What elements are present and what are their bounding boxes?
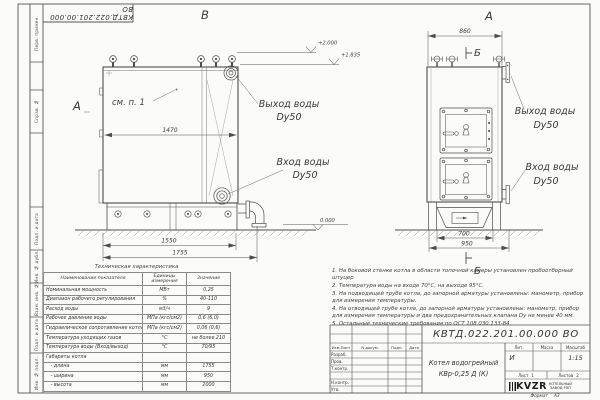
left-view-inlet-flange <box>214 188 230 204</box>
spec-cell: Гидравлическое сопротивление котла <box>44 324 143 334</box>
left-view-top-bolts <box>110 56 236 67</box>
dim-1470: 1470 <box>162 127 177 134</box>
table-row: - высотамм2000 <box>44 381 231 391</box>
note-1: 1. На боковой стенке котла в области топ… <box>332 268 588 282</box>
right-view-lower-door <box>440 158 492 200</box>
table-row: - длинамм1755 <box>44 362 231 372</box>
tb-scale-value: 1:15 <box>561 352 590 364</box>
ground-line-left <box>75 230 316 236</box>
tb-row-utv: Утв. <box>331 387 352 392</box>
spec-cell: Рабочее давление воды <box>44 314 143 324</box>
product-name-line2: КВр-0,25 Д (К) <box>439 370 489 378</box>
company-logo: KVZR <box>516 381 547 392</box>
spec-header-value: Значение <box>187 273 231 286</box>
doc-number-rotated: КВТД.022.201.00.000 ВО <box>43 4 133 22</box>
spec-cell: мм <box>143 372 187 382</box>
stamp-podp-data-1: Подп. и дата <box>30 207 43 250</box>
dim-950: 950 <box>461 241 473 248</box>
format-note: Формат А3 <box>500 394 590 400</box>
dim-1550: 1550 <box>161 238 176 245</box>
spec-cell: °С <box>143 343 187 353</box>
right-view-outlet-flange <box>502 63 510 83</box>
spec-cell: мм <box>143 381 187 391</box>
spec-cell <box>187 353 231 363</box>
spec-cell: 950 <box>187 372 231 382</box>
dim-700: 700 <box>458 231 470 238</box>
left-view-boiler <box>99 67 238 230</box>
dim-860: 860 <box>459 28 471 35</box>
stamp-inv-dubl: Инв. № дубл. <box>30 250 43 283</box>
right-view-upper-door <box>440 108 492 153</box>
stamp-inv-podl: Инв. № подл. <box>30 353 43 393</box>
left-inlet-label-2: Dy50 <box>292 170 317 181</box>
spec-cell: 0,06 (0,6) <box>187 324 231 334</box>
spec-cell: Диапазон рабочего регулирования <box>44 295 143 305</box>
tb-col-izm-list: Изм.Лист <box>330 344 352 351</box>
tb-col-n-dokum: N докум. <box>352 344 388 351</box>
right-outlet-label-1: Выход воды <box>515 106 576 117</box>
spec-table-block: Техническая характеристика Наименование … <box>43 272 230 392</box>
tb-col-data: Дата <box>406 344 422 351</box>
spec-cell: 0,6 (6,0) <box>187 314 231 324</box>
left-outlet-label-1: Выход воды <box>259 99 320 110</box>
table-row: Гидравлическое сопротивление котлаМПа (к… <box>44 324 231 334</box>
company-name-line2: ЗАВОД РЭП <box>549 386 572 390</box>
table-row: Рабочее давление водыМПа (кгс/см2)0,6 (6… <box>44 314 231 324</box>
spec-header-name: Наименование показателя <box>44 273 143 286</box>
tb-row-razrab: Разраб. <box>331 352 352 357</box>
elevation-zero: 0.000 <box>320 218 336 224</box>
spec-cell: - ширина <box>44 372 143 382</box>
table-row: - ширинамм950 <box>44 372 231 382</box>
stamp-podp-data-2: Подп. и дата <box>30 317 43 353</box>
product-name: Котел водогрейный КВр-0,25 Д (К) <box>423 345 504 391</box>
format-value: А3 <box>554 394 560 399</box>
tb-scale-label: Масштаб <box>561 344 590 351</box>
spec-cell: МПа (кгс/см2) <box>143 324 187 334</box>
right-view-leaders <box>511 76 526 191</box>
stamp-vzam-inv: Взам. инв. № <box>30 283 43 317</box>
spec-cell: 2000 <box>187 381 231 391</box>
spec-header-row: Наименование показателя Единицы измерени… <box>44 273 231 286</box>
tb-mass-label: Масса <box>533 344 561 351</box>
spec-cell: Расход воды <box>44 305 143 315</box>
stamp-sprav-no: Справ. № <box>30 90 43 133</box>
elevation-top: +2.000 <box>318 41 338 47</box>
tb-lit-value: И <box>505 352 519 364</box>
table-row: Габариты котла <box>44 353 231 363</box>
stamp-perv-primen: Перв. примен. <box>30 4 43 62</box>
technical-notes: 1. На боковой стенке котла в области топ… <box>332 268 588 329</box>
right-inlet-label-2: Dy50 <box>533 176 558 187</box>
tb-row-tkontr: Т.контр. <box>331 366 352 371</box>
left-view-dimensions <box>103 135 257 262</box>
left-outlet-label-2: Dy50 <box>276 112 301 123</box>
drawing-sheet: В А А см. п. 1 1470 1550 1755 860 700 95… <box>0 0 600 400</box>
spec-cell: мм <box>143 362 187 372</box>
company-name: КОТЕЛЬНЫЙ ЗАВОД РЭП <box>549 382 572 390</box>
spec-cell: МВт <box>143 286 187 296</box>
spec-cell: Температура уходящих газов <box>44 333 143 343</box>
view-b-label: В <box>201 8 209 22</box>
elevation-mid: +1.835 <box>341 53 361 59</box>
table-row: Номинальная мощностьМВт0,25 <box>44 286 231 296</box>
format-label: Формат <box>530 394 547 399</box>
table-row: Температура воды (Вход/выход)°С70/95 <box>44 343 231 353</box>
spec-cell: 1755 <box>187 362 231 372</box>
spec-cell: - длина <box>44 362 143 372</box>
table-row: Расход водым3/ч9 <box>44 305 231 315</box>
note-3: 3. На подводящей трубе котла, до запорно… <box>332 291 588 305</box>
note-4: 4. На отводящей трубе котла, до запорной… <box>332 306 588 320</box>
spec-cell: 40-110 <box>187 295 231 305</box>
left-view-base-bolts <box>115 211 231 217</box>
tb-sheets-value: 2 <box>576 373 579 378</box>
spec-cell <box>143 353 187 363</box>
tb-sheets-cell: Листов 2 <box>547 372 590 379</box>
note-2: 2. Температура воды на входе 70°С, на вы… <box>332 283 588 290</box>
company-logo-cell: KVZR КОТЕЛЬНЫЙ ЗАВОД РЭП <box>506 380 593 393</box>
product-name-line1: Котел водогрейный <box>429 359 498 367</box>
spec-cell: % <box>143 295 187 305</box>
spec-table: Наименование показателя Единицы измерени… <box>43 272 231 392</box>
title-block-doc-number: КВТД.022.201.00.000 ВО <box>424 327 588 342</box>
left-view-outlet-flange <box>224 66 238 80</box>
left-inlet-label-1: Вход воды <box>276 157 330 168</box>
tb-sheet-label: Лист <box>518 373 528 378</box>
tb-col-podp: Подп. <box>388 344 406 351</box>
tb-lit-label: Лит. <box>505 344 533 351</box>
tb-sheet-value: 1 <box>531 373 534 378</box>
right-view-top-valves <box>432 56 505 67</box>
spec-table-title: Техническая характеристика <box>43 264 230 270</box>
tb-row-prov: Пров. <box>331 359 352 364</box>
spec-cell: °С <box>143 333 187 343</box>
right-outlet-label-2: Dy50 <box>533 120 558 131</box>
left-view-elbow-pipe <box>238 201 266 227</box>
dim-1755: 1755 <box>172 250 187 257</box>
section-b-top-label: Б <box>474 48 481 59</box>
tb-sheet-cell: Лист 1 <box>505 372 547 379</box>
left-view-dim-arrows <box>103 133 257 260</box>
spec-cell: 9 <box>187 305 231 315</box>
arrow-a-label: А <box>72 99 81 113</box>
spec-cell: 70/95 <box>187 343 231 353</box>
spec-cell: 0,25 <box>187 286 231 296</box>
spec-cell: м3/ч <box>143 305 187 315</box>
spec-cell: Температура воды (Вход/выход) <box>44 343 143 353</box>
view-a-label: А <box>484 9 493 23</box>
table-row: Диапазон рабочего регулирования%40-110 <box>44 295 231 305</box>
tb-sheets-label: Листов <box>558 373 573 378</box>
table-row: Температура уходящих газов°Сне более 210 <box>44 333 231 343</box>
spec-cell: не более 210 <box>187 333 231 343</box>
spec-cell: МПа (кгс/см2) <box>143 314 187 324</box>
spec-header-units: Единицы измерения <box>143 273 187 286</box>
right-view-boiler <box>427 67 502 230</box>
see-note-label: см. п. 1 <box>112 98 145 108</box>
spec-cell: Номинальная мощность <box>44 286 143 296</box>
tb-row-nkontr: Н.контр. <box>331 380 352 385</box>
right-view-inlet-flange <box>502 186 510 204</box>
right-inlet-label-1: Вход воды <box>525 162 579 173</box>
logo-bars-icon <box>509 382 516 391</box>
spec-cell: Габариты котла <box>44 353 143 363</box>
spec-cell: - высота <box>44 381 143 391</box>
